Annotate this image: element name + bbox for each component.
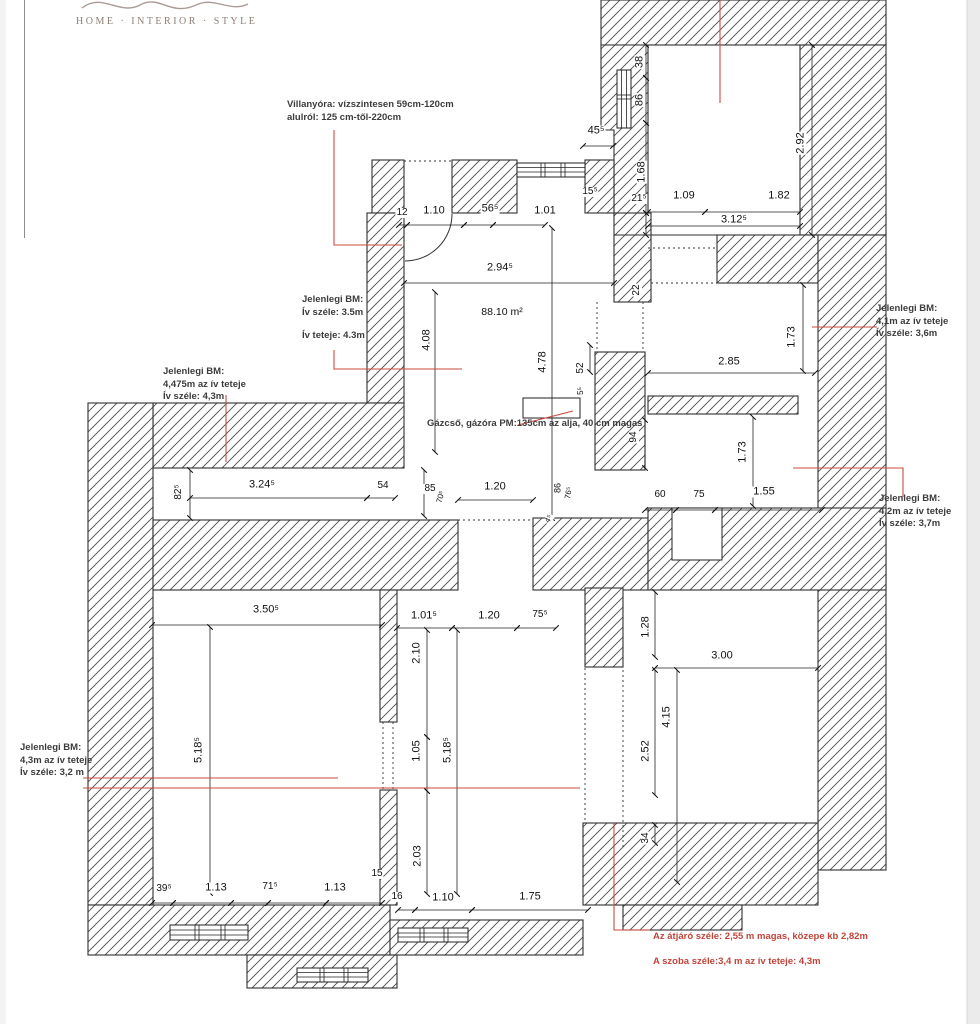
annotation-text: Jelenlegi BM:4,1m az ív tetejeÍv széle: … [876, 303, 948, 341]
annotation-text: Az átjáró széle: 2,55 m magas, közepe kb… [653, 931, 868, 944]
annotation-text: A szoba széle:3,4 m az ív teteje: 4,3m [653, 956, 821, 969]
annotation-text: Jelenlegi BM:4,2m az ív tetejeÍv széle: … [879, 493, 951, 531]
annotation-text: Jelenlegi BM:4,475m az ív tetejeÍv széle… [163, 366, 246, 404]
annotation-text: Gázcső, gázóra PM:135cm az alja, 40 cm m… [427, 418, 642, 431]
annotation-text: Jelenlegi BM:4,3m az ív tetejeÍv széle: … [20, 742, 92, 780]
annotation-text: Villanyóra: vízszintesen 59cm-120cmalulr… [287, 99, 454, 124]
annotations-layer: Villanyóra: vízszintesen 59cm-120cmalulr… [0, 0, 980, 1024]
annotation-text: Jelenlegi BM:Ív széle: 3.5mÍv teteje: 4.… [302, 294, 365, 343]
floor-plan-page: HOME · INTERIOR · STYLE 38861.6821⁵2.921… [0, 0, 980, 1024]
